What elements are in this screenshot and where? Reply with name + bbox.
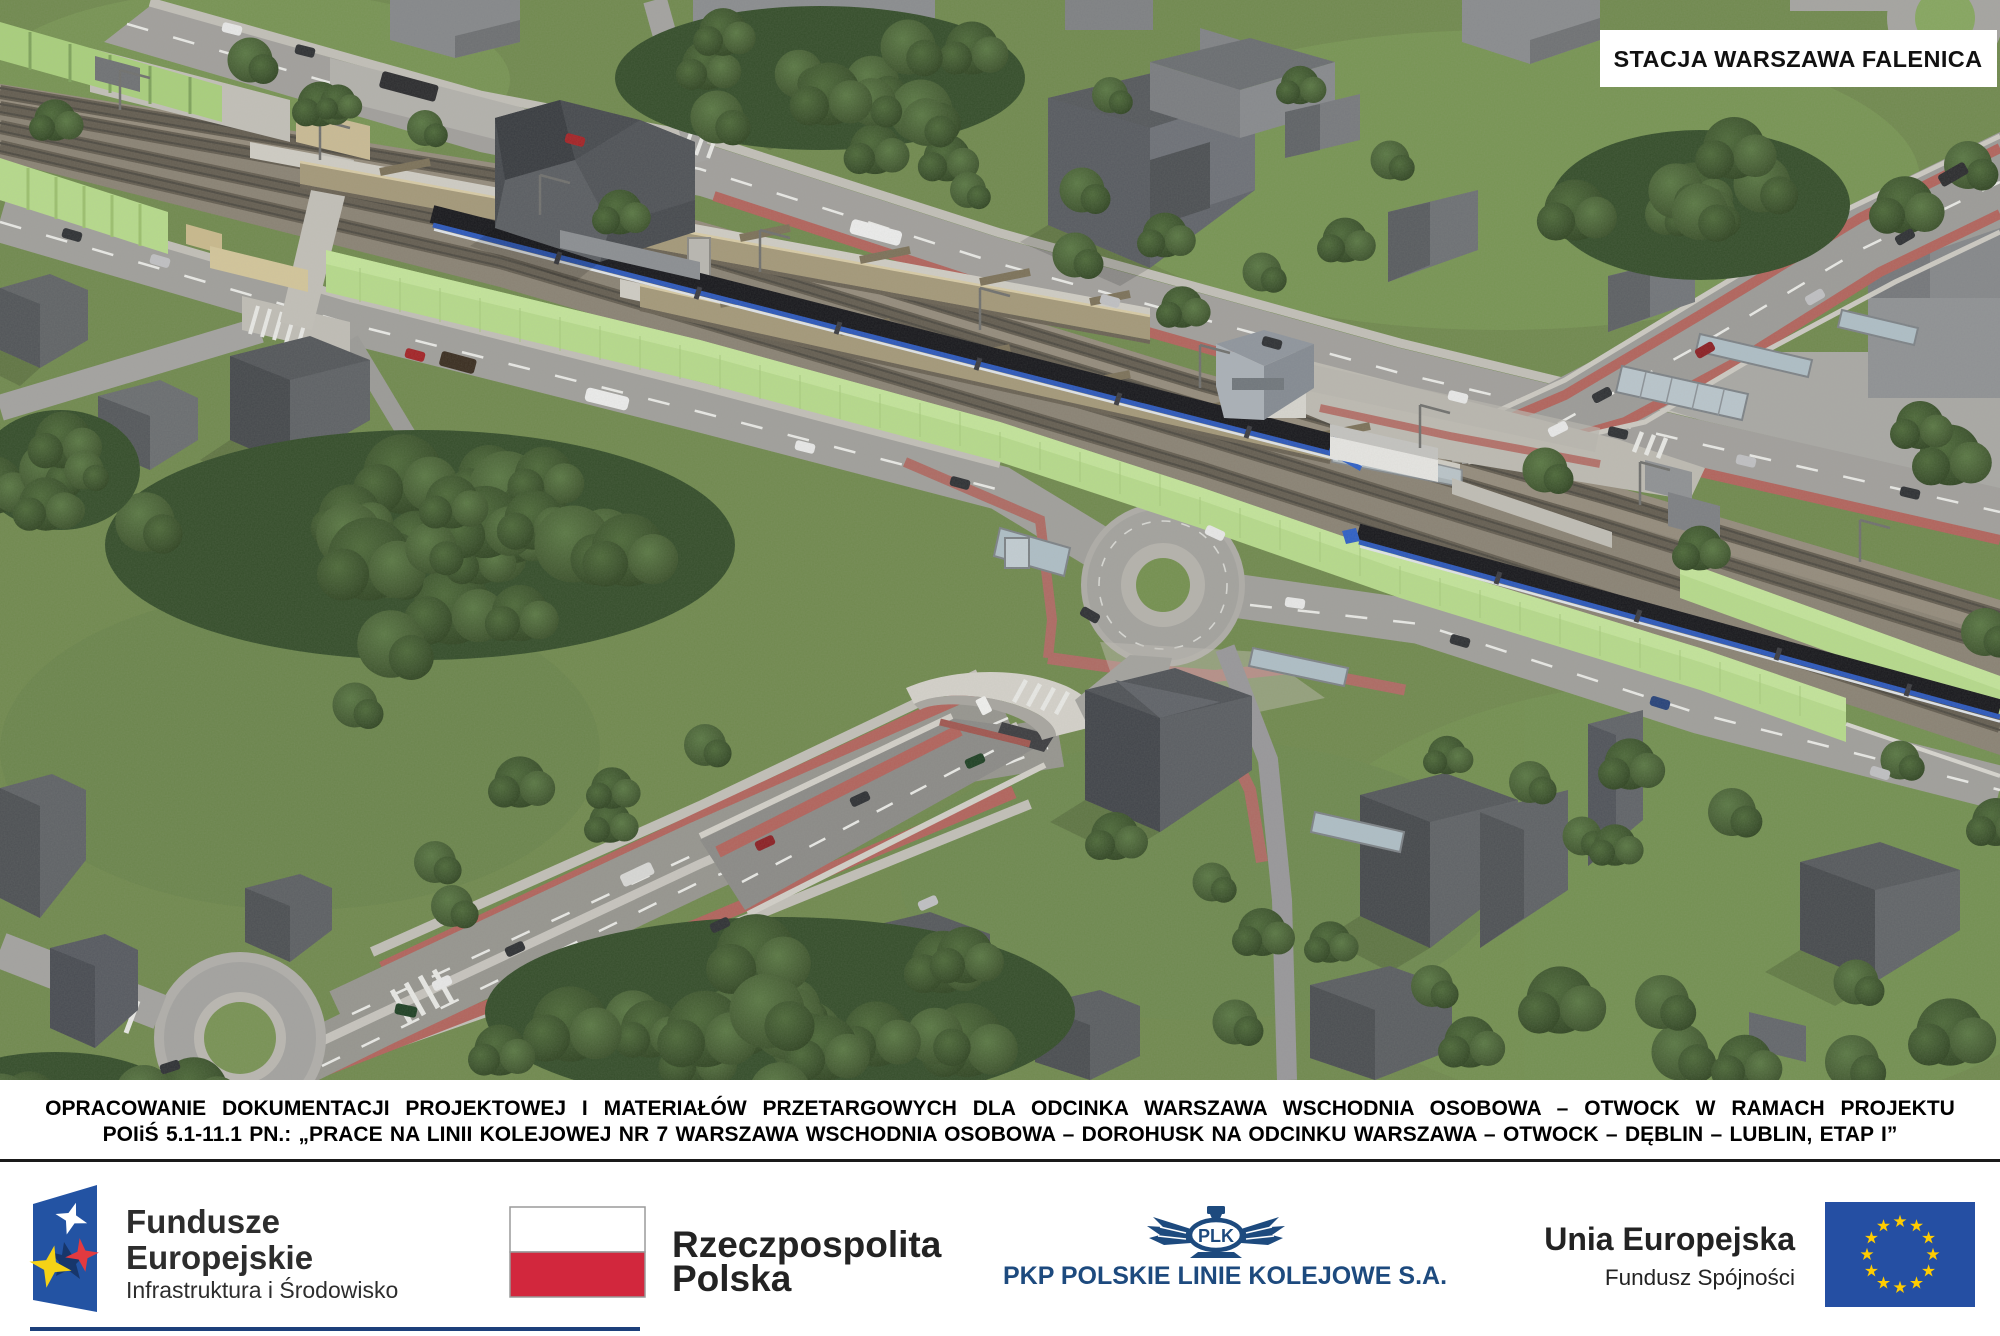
svg-text:Polska: Polska — [672, 1258, 792, 1299]
svg-text:Europejskie: Europejskie — [126, 1239, 313, 1276]
svg-text:Fundusze: Fundusze — [126, 1203, 280, 1240]
svg-text:PLK: PLK — [1198, 1226, 1234, 1246]
svg-text:PKP POLSKIE LINIE KOLEJOWE S.A: PKP POLSKIE LINIE KOLEJOWE S.A. — [1003, 1262, 1447, 1290]
svg-text:Infrastruktura i Środowisko: Infrastruktura i Środowisko — [126, 1276, 398, 1303]
svg-text:Fundusz Spójności: Fundusz Spójności — [1605, 1265, 1795, 1290]
svg-text:STACJA WARSZAWA FALENICA: STACJA WARSZAWA FALENICA — [1613, 46, 1982, 72]
svg-text:Unia Europejska: Unia Europejska — [1544, 1221, 1795, 1257]
